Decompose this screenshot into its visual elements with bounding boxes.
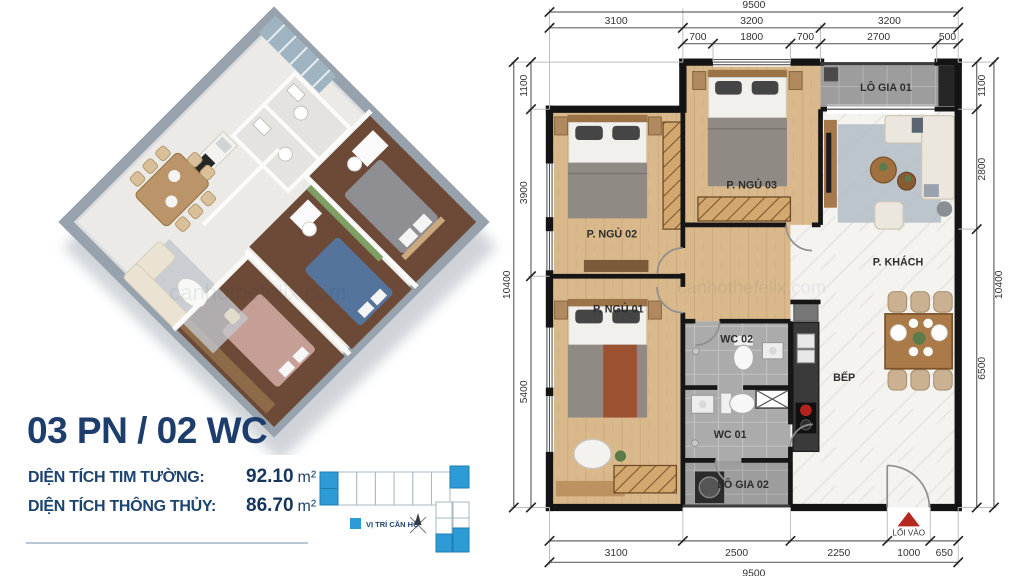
floor-plan-2d: P. NGỦ 02 P. NGỦ 01 P. NGỦ 03 P. KHÁCH B… (500, 0, 1012, 576)
balcony1-slider (827, 105, 935, 114)
balcony1-ac-unit (824, 67, 838, 81)
svg-text:700: 700 (689, 32, 706, 43)
legend-label: VỊ TRÍ CĂN HỘ (366, 520, 419, 529)
room-label-bedroom2: P. NGỦ 02 (587, 228, 638, 241)
room-label-bedroom3: P. NGỦ 03 (726, 178, 777, 191)
room-label-living: P. KHÁCH (873, 256, 924, 269)
dining-furniture (885, 292, 952, 390)
svg-text:3900: 3900 (519, 181, 530, 204)
svg-text:10400: 10400 (502, 270, 513, 299)
svg-text:5400: 5400 (519, 380, 530, 403)
svg-text:2250: 2250 (827, 548, 850, 559)
entrance-label: LỐI VÀO (892, 527, 925, 538)
room-label-wc1: WC 01 (714, 429, 747, 441)
svg-text:2800: 2800 (977, 157, 988, 180)
room-label-wc2: WC 02 (720, 334, 753, 346)
bedroom3-furniture (693, 70, 802, 221)
svg-text:9500: 9500 (742, 568, 765, 576)
balcony1-ac-block (938, 66, 957, 106)
svg-text:6500: 6500 (977, 357, 988, 380)
svg-text:3100: 3100 (605, 16, 628, 27)
svg-text:10400: 10400 (994, 270, 1005, 299)
area-info: DIỆN TÍCH TIM TƯỜNG: 92.10 m² DIỆN TÍCH … (28, 466, 328, 524)
svg-text:3100: 3100 (605, 548, 628, 559)
svg-text:1000: 1000 (897, 548, 920, 559)
svg-text:2500: 2500 (725, 548, 748, 559)
area-unit: m² (298, 469, 317, 487)
room-label-balcony1: LÔ GIA 01 (860, 81, 912, 94)
entrance-marker: LỐI VÀO (892, 512, 925, 538)
room-label-bedroom1: P. NGỦ 01 (593, 303, 644, 316)
area-value: 92.10 (246, 466, 294, 488)
area-value: 86.70 (246, 495, 294, 517)
svg-text:1800: 1800 (740, 32, 763, 43)
svg-text:9500: 9500 (742, 0, 765, 11)
svg-text:1100: 1100 (519, 74, 530, 96)
watermark-text: canhothefelix.com (169, 280, 346, 305)
render-3d: canhothefelix.com (8, 0, 508, 455)
area-row-gross: DIỆN TÍCH TIM TƯỜNG: 92.10 m² (28, 466, 328, 495)
room-label-balcony2: LÔ GIA 02 (717, 478, 769, 491)
area-row-net: DIỆN TÍCH THÔNG THỦY: 86.70 m² (28, 495, 328, 524)
living-furniture (824, 116, 954, 229)
svg-text:500: 500 (939, 32, 956, 43)
svg-text:1100: 1100 (977, 74, 988, 96)
svg-text:3200: 3200 (740, 16, 763, 27)
room-label-kitchen: BẾP (833, 371, 855, 384)
svg-text:3200: 3200 (878, 16, 901, 27)
area-unit: m² (298, 498, 317, 516)
key-plan: VỊ TRÍ CĂN HỘ (318, 452, 478, 556)
watermark-text: canhothefelix.com (677, 276, 826, 297)
area-label: DIỆN TÍCH THÔNG THỦY: (28, 498, 246, 516)
divider-line (26, 542, 308, 544)
floorplan-page: canhothefelix.com 03 PN / 02 WC DIỆN TÍC… (0, 0, 1024, 576)
area-label: DIỆN TÍCH TIM TƯỜNG: (28, 469, 246, 487)
svg-text:650: 650 (936, 548, 953, 559)
svg-text:2700: 2700 (867, 32, 890, 43)
legend-swatch (350, 518, 361, 529)
svg-text:700: 700 (797, 32, 814, 43)
apartment-type-title: 03 PN / 02 WC (27, 410, 267, 452)
kitchen-furniture (793, 303, 819, 452)
